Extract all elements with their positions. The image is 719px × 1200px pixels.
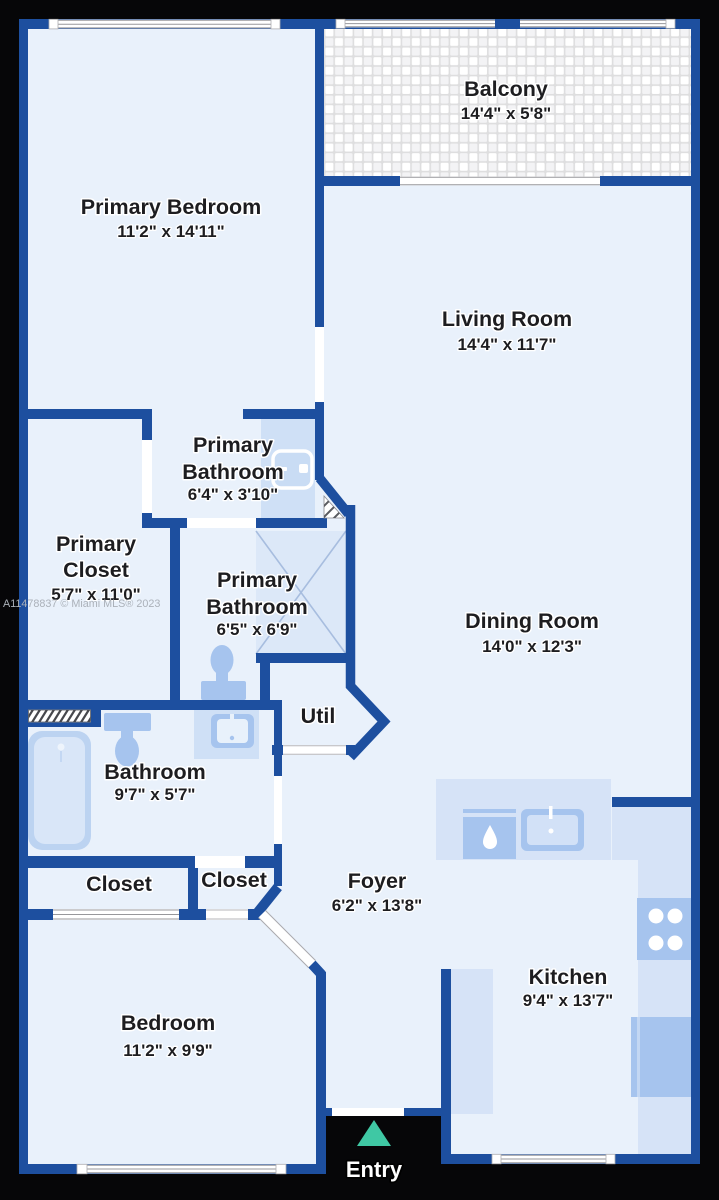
svg-text:Primary Bedroom: Primary Bedroom xyxy=(81,195,261,219)
svg-text:Entry: Entry xyxy=(346,1157,403,1182)
svg-text:14'4" x 11'7": 14'4" x 11'7" xyxy=(458,335,557,354)
svg-text:Primary: Primary xyxy=(56,532,136,556)
svg-text:Closet: Closet xyxy=(63,558,129,582)
svg-text:9'4" x 13'7": 9'4" x 13'7" xyxy=(523,991,613,1010)
svg-text:11'2" x 14'11": 11'2" x 14'11" xyxy=(117,222,224,241)
svg-text:Bathroom: Bathroom xyxy=(104,760,206,784)
svg-text:6'5" x 6'9": 6'5" x 6'9" xyxy=(217,620,298,639)
svg-text:9'7" x 5'7": 9'7" x 5'7" xyxy=(115,785,196,804)
svg-text:Living Room: Living Room xyxy=(442,307,572,331)
svg-text:Dining Room: Dining Room xyxy=(465,609,599,633)
svg-text:Kitchen: Kitchen xyxy=(529,965,608,989)
svg-text:6'4" x 3'10": 6'4" x 3'10" xyxy=(188,485,278,504)
svg-text:A11478837 © Miami MLS® 2023: A11478837 © Miami MLS® 2023 xyxy=(3,598,160,610)
svg-text:Bathroom: Bathroom xyxy=(206,595,308,619)
svg-text:Foyer: Foyer xyxy=(348,869,407,893)
svg-text:Primary: Primary xyxy=(193,433,273,457)
svg-text:Bathroom: Bathroom xyxy=(182,460,284,484)
svg-text:Closet: Closet xyxy=(201,868,267,892)
svg-text:Bedroom: Bedroom xyxy=(121,1011,215,1035)
svg-text:6'2" x 13'8": 6'2" x 13'8" xyxy=(332,896,422,915)
svg-text:Util: Util xyxy=(301,704,336,728)
svg-text:11'2" x 9'9": 11'2" x 9'9" xyxy=(123,1041,212,1060)
svg-text:14'0" x 12'3": 14'0" x 12'3" xyxy=(482,637,582,656)
svg-text:Closet: Closet xyxy=(86,872,152,896)
svg-text:Balcony: Balcony xyxy=(464,77,548,101)
svg-text:Primary: Primary xyxy=(217,568,297,592)
svg-text:14'4" x 5'8": 14'4" x 5'8" xyxy=(461,104,551,123)
